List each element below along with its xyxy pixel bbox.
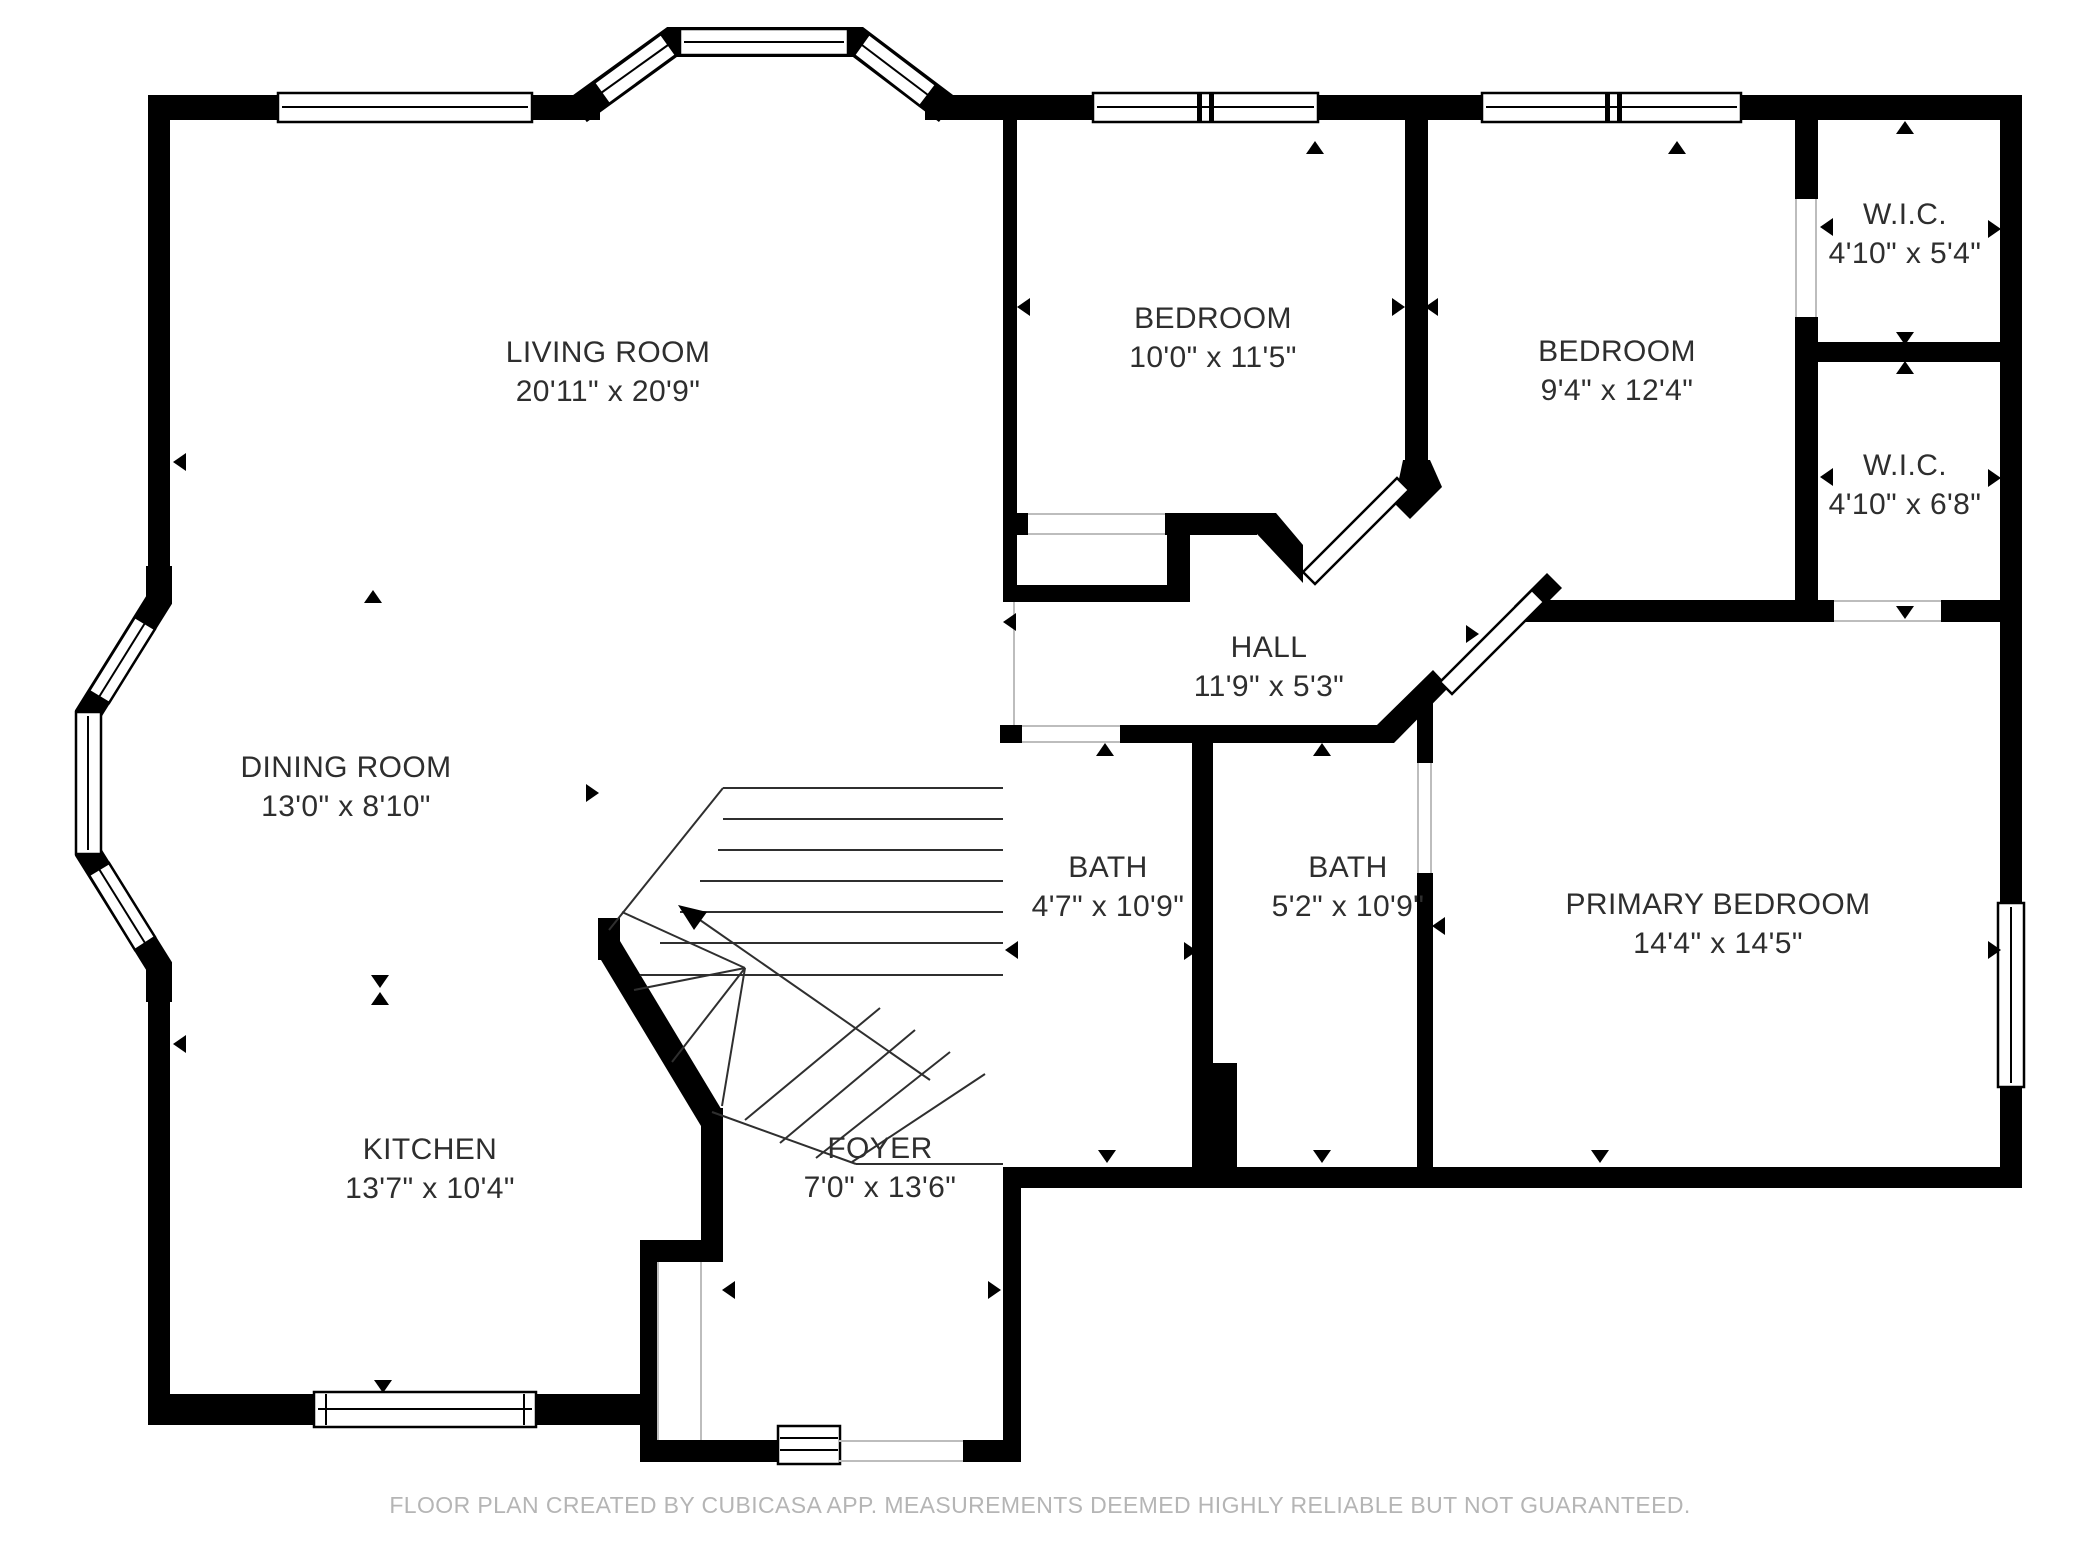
room-label-primary-bedroom: PRIMARY BEDROOM 14'4" x 14'5" bbox=[1566, 885, 1871, 963]
opening-hairlines bbox=[658, 199, 1941, 1461]
room-label-hall: HALL 11'9" x 5'3" bbox=[1194, 628, 1344, 706]
door-arrow-horizontal-icon bbox=[1003, 613, 1016, 631]
room-label-bath-2: BATH 5'2" x 10'9" bbox=[1272, 848, 1425, 926]
door-arrow-vertical-icon bbox=[1098, 1150, 1116, 1163]
floorplan-page: LIVING ROOM 20'11" x 20'9" DINING ROOM 1… bbox=[0, 0, 2080, 1560]
door-arrow-horizontal-icon bbox=[1392, 298, 1405, 316]
room-dims: 13'0" x 8'10" bbox=[240, 787, 451, 826]
room-dims: 4'10" x 6'8" bbox=[1829, 485, 1982, 524]
room-name: HALL bbox=[1194, 628, 1344, 667]
room-label-wic-1: W.I.C. 4'10" x 5'4" bbox=[1829, 195, 1982, 273]
door-arrow-horizontal-icon bbox=[586, 784, 599, 802]
room-dims: 13'7" x 10'4" bbox=[345, 1169, 515, 1208]
room-name: W.I.C. bbox=[1829, 195, 1982, 234]
windows bbox=[76, 29, 2024, 1464]
bedroom2-door-icon bbox=[1303, 478, 1409, 584]
door-arrow-vertical-icon bbox=[1306, 141, 1324, 154]
room-label-kitchen: KITCHEN 13'7" x 10'4" bbox=[345, 1130, 515, 1208]
door-arrow-horizontal-icon bbox=[1988, 220, 2001, 238]
door-arrow-vertical-icon bbox=[1313, 743, 1331, 756]
door-arrow-vertical-icon bbox=[371, 992, 389, 1005]
door-arrow-vertical-icon bbox=[364, 590, 382, 603]
door-arrow-horizontal-icon bbox=[1432, 917, 1445, 935]
room-name: FOYER bbox=[804, 1129, 957, 1168]
door-arrow-vertical-icon bbox=[1896, 361, 1914, 374]
door-arrow-vertical-icon bbox=[1313, 1150, 1331, 1163]
room-label-wic-2: W.I.C. 4'10" x 6'8" bbox=[1829, 446, 1982, 524]
door-arrow-horizontal-icon bbox=[173, 1035, 186, 1053]
room-dims: 9'4" x 12'4" bbox=[1538, 371, 1696, 410]
room-dims: 10'0" x 11'5" bbox=[1129, 338, 1297, 377]
room-dims: 4'10" x 5'4" bbox=[1829, 234, 1982, 273]
room-name: DINING ROOM bbox=[240, 748, 451, 787]
bay-windows bbox=[88, 42, 948, 1002]
room-dims: 11'9" x 5'3" bbox=[1194, 667, 1344, 706]
door-arrow-horizontal-icon bbox=[988, 1281, 1001, 1299]
door-arrow-horizontal-icon bbox=[173, 453, 186, 471]
front-door-icon bbox=[778, 1426, 840, 1464]
room-label-bath-1: BATH 4'7" x 10'9" bbox=[1032, 848, 1185, 926]
door-arrow-vertical-icon bbox=[1096, 743, 1114, 756]
room-dims: 5'2" x 10'9" bbox=[1272, 887, 1425, 926]
primary-door-icon bbox=[1440, 590, 1544, 694]
room-label-bedroom-2: BEDROOM 9'4" x 12'4" bbox=[1538, 332, 1696, 410]
room-name: BEDROOM bbox=[1538, 332, 1696, 371]
footer-disclaimer: FLOOR PLAN CREATED BY CUBICASA APP. MEAS… bbox=[0, 1492, 2080, 1519]
door-arrow-vertical-icon bbox=[1591, 1150, 1609, 1163]
room-name: LIVING ROOM bbox=[506, 333, 710, 372]
door-arrow-vertical-icon bbox=[1896, 121, 1914, 134]
room-label-dining-room: DINING ROOM 13'0" x 8'10" bbox=[240, 748, 451, 826]
room-label-bedroom-1: BEDROOM 10'0" x 11'5" bbox=[1129, 299, 1297, 377]
room-name: PRIMARY BEDROOM bbox=[1566, 885, 1871, 924]
room-dims: 14'4" x 14'5" bbox=[1566, 924, 1871, 963]
door-arrow-horizontal-icon bbox=[1005, 941, 1018, 959]
room-dims: 7'0" x 13'6" bbox=[804, 1168, 957, 1207]
staircase-icon bbox=[609, 788, 1003, 1164]
door-arrow-horizontal-icon bbox=[722, 1281, 735, 1299]
room-label-foyer: FOYER 7'0" x 13'6" bbox=[804, 1129, 957, 1207]
room-name: BATH bbox=[1032, 848, 1185, 887]
door-arrow-vertical-icon bbox=[1668, 141, 1686, 154]
door-arrow-vertical-icon bbox=[1896, 606, 1914, 619]
room-name: W.I.C. bbox=[1829, 446, 1982, 485]
door-arrow-horizontal-icon bbox=[1017, 298, 1030, 316]
room-name: BATH bbox=[1272, 848, 1425, 887]
door-arrow-vertical-icon bbox=[371, 975, 389, 988]
room-label-living-room: LIVING ROOM 20'11" x 20'9" bbox=[506, 333, 710, 411]
room-name: KITCHEN bbox=[345, 1130, 515, 1169]
room-dims: 4'7" x 10'9" bbox=[1032, 887, 1185, 926]
door-arrow-horizontal-icon bbox=[1988, 469, 2001, 487]
room-name: BEDROOM bbox=[1129, 299, 1297, 338]
door-arrow-horizontal-icon bbox=[1466, 625, 1479, 643]
room-dims: 20'11" x 20'9" bbox=[506, 372, 710, 411]
